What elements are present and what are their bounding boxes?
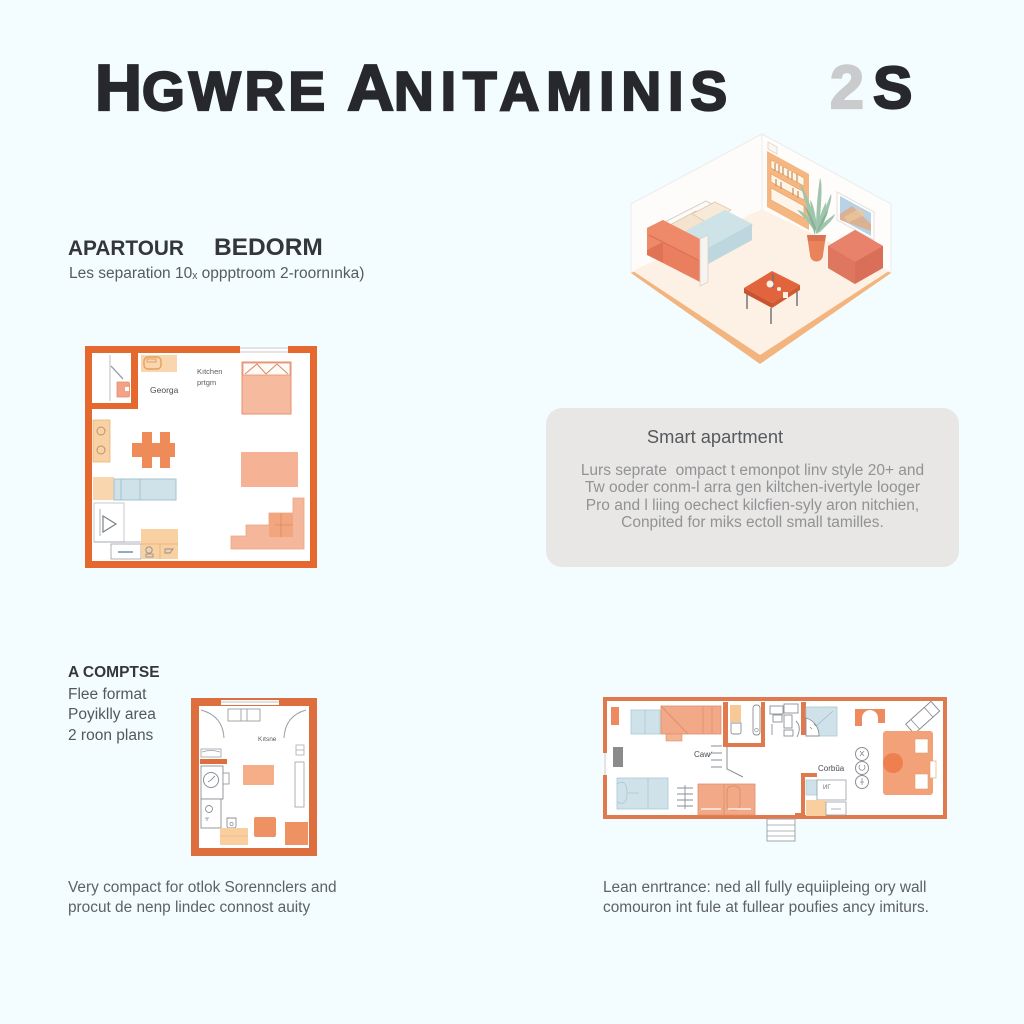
svg-text:ИГ: ИГ: [823, 785, 831, 791]
svg-text:prtgm: prtgm: [197, 378, 216, 387]
svg-text:Caw∕: Caw∕: [694, 750, 713, 759]
svg-text:Georga: Georga: [150, 385, 179, 395]
svg-text:Kıtsne: Kıtsne: [258, 736, 277, 743]
svg-text:Kıtchen: Kıtchen: [197, 367, 222, 376]
svg-text:Corbŭa: Corbŭa: [818, 764, 845, 773]
